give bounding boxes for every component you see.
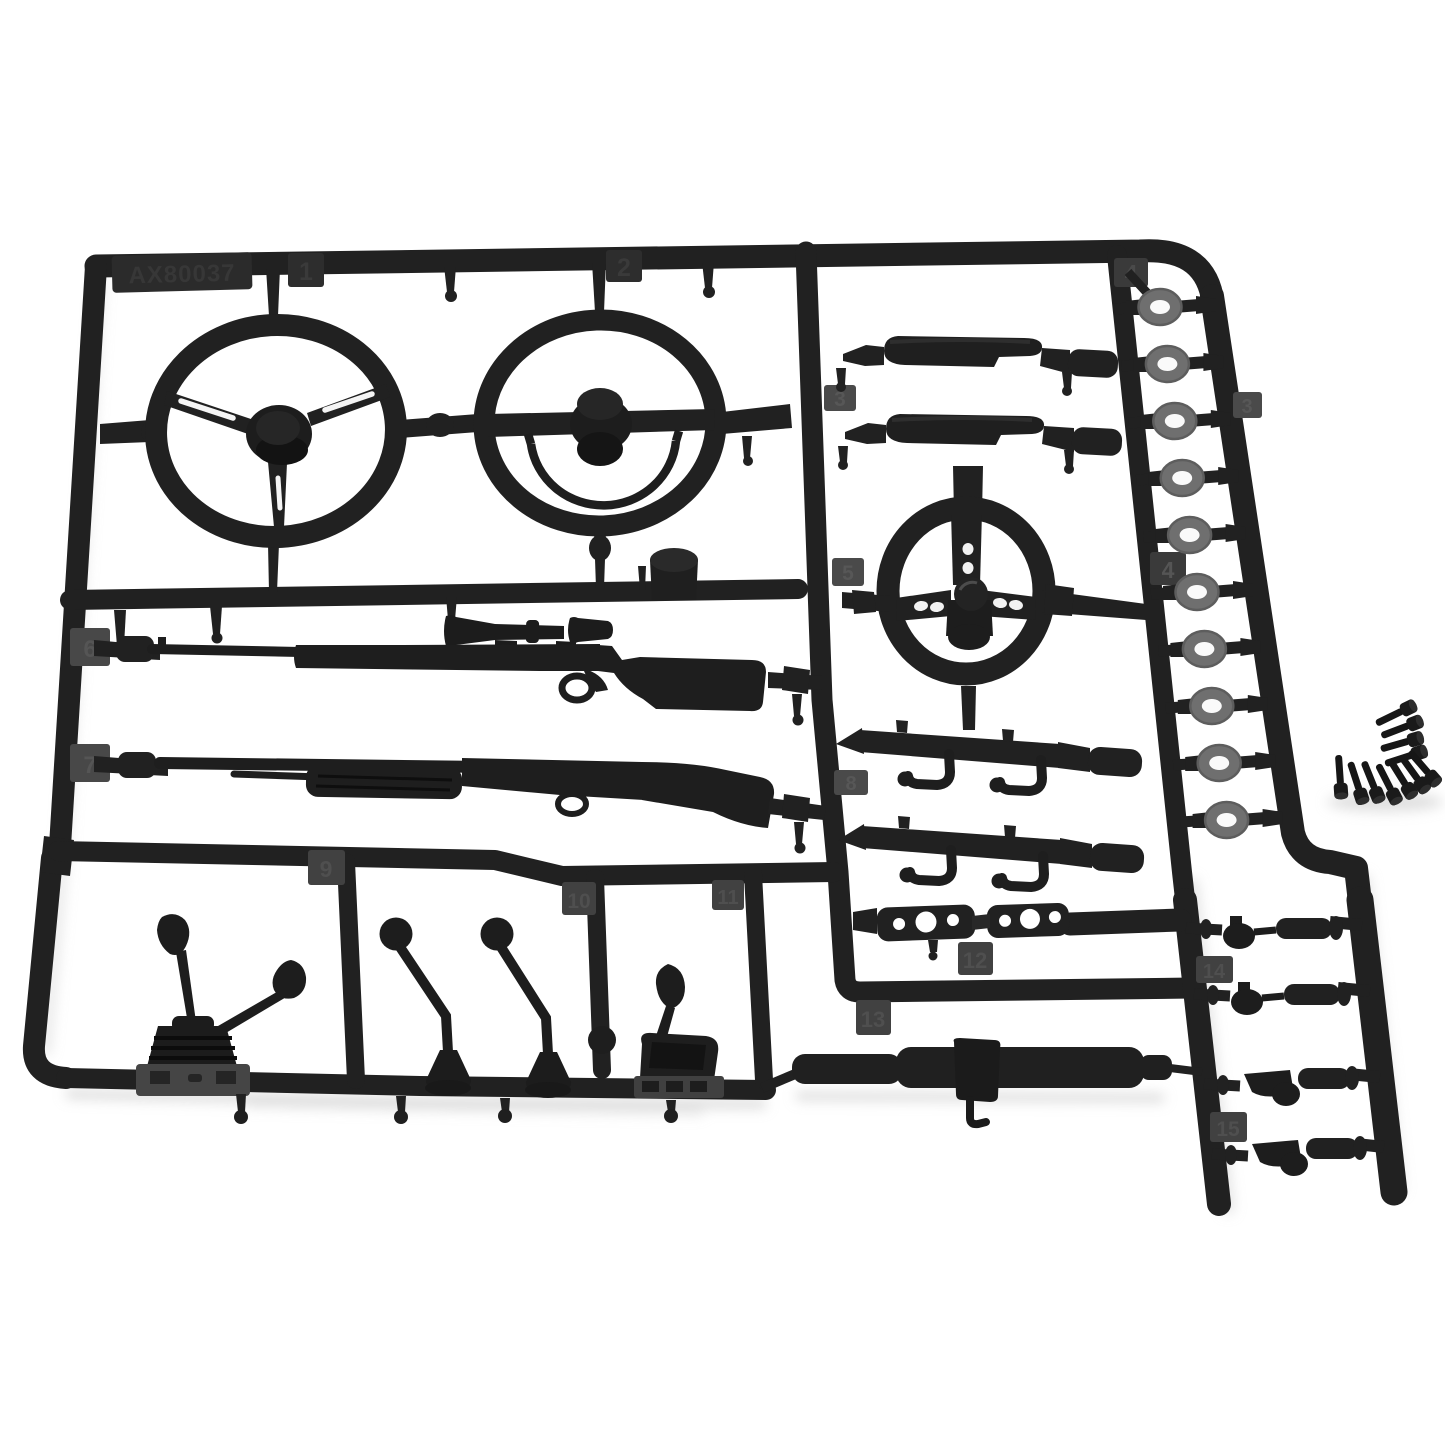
- svg-text:9: 9: [320, 856, 333, 882]
- svg-text:13: 13: [861, 1007, 885, 1032]
- svg-text:8: 8: [845, 773, 856, 795]
- svg-text:11: 11: [717, 887, 738, 909]
- svg-text:AX80037: AX80037: [128, 260, 236, 290]
- svg-text:14: 14: [1203, 961, 1226, 983]
- svg-text:1: 1: [299, 258, 313, 286]
- svg-text:5: 5: [842, 562, 854, 585]
- svg-text:2: 2: [617, 254, 631, 282]
- svg-text:4: 4: [1162, 557, 1175, 583]
- svg-text:15: 15: [1216, 1118, 1240, 1141]
- svg-text:12: 12: [963, 948, 987, 973]
- svg-text:3: 3: [1241, 396, 1252, 418]
- svg-text:10: 10: [567, 890, 590, 913]
